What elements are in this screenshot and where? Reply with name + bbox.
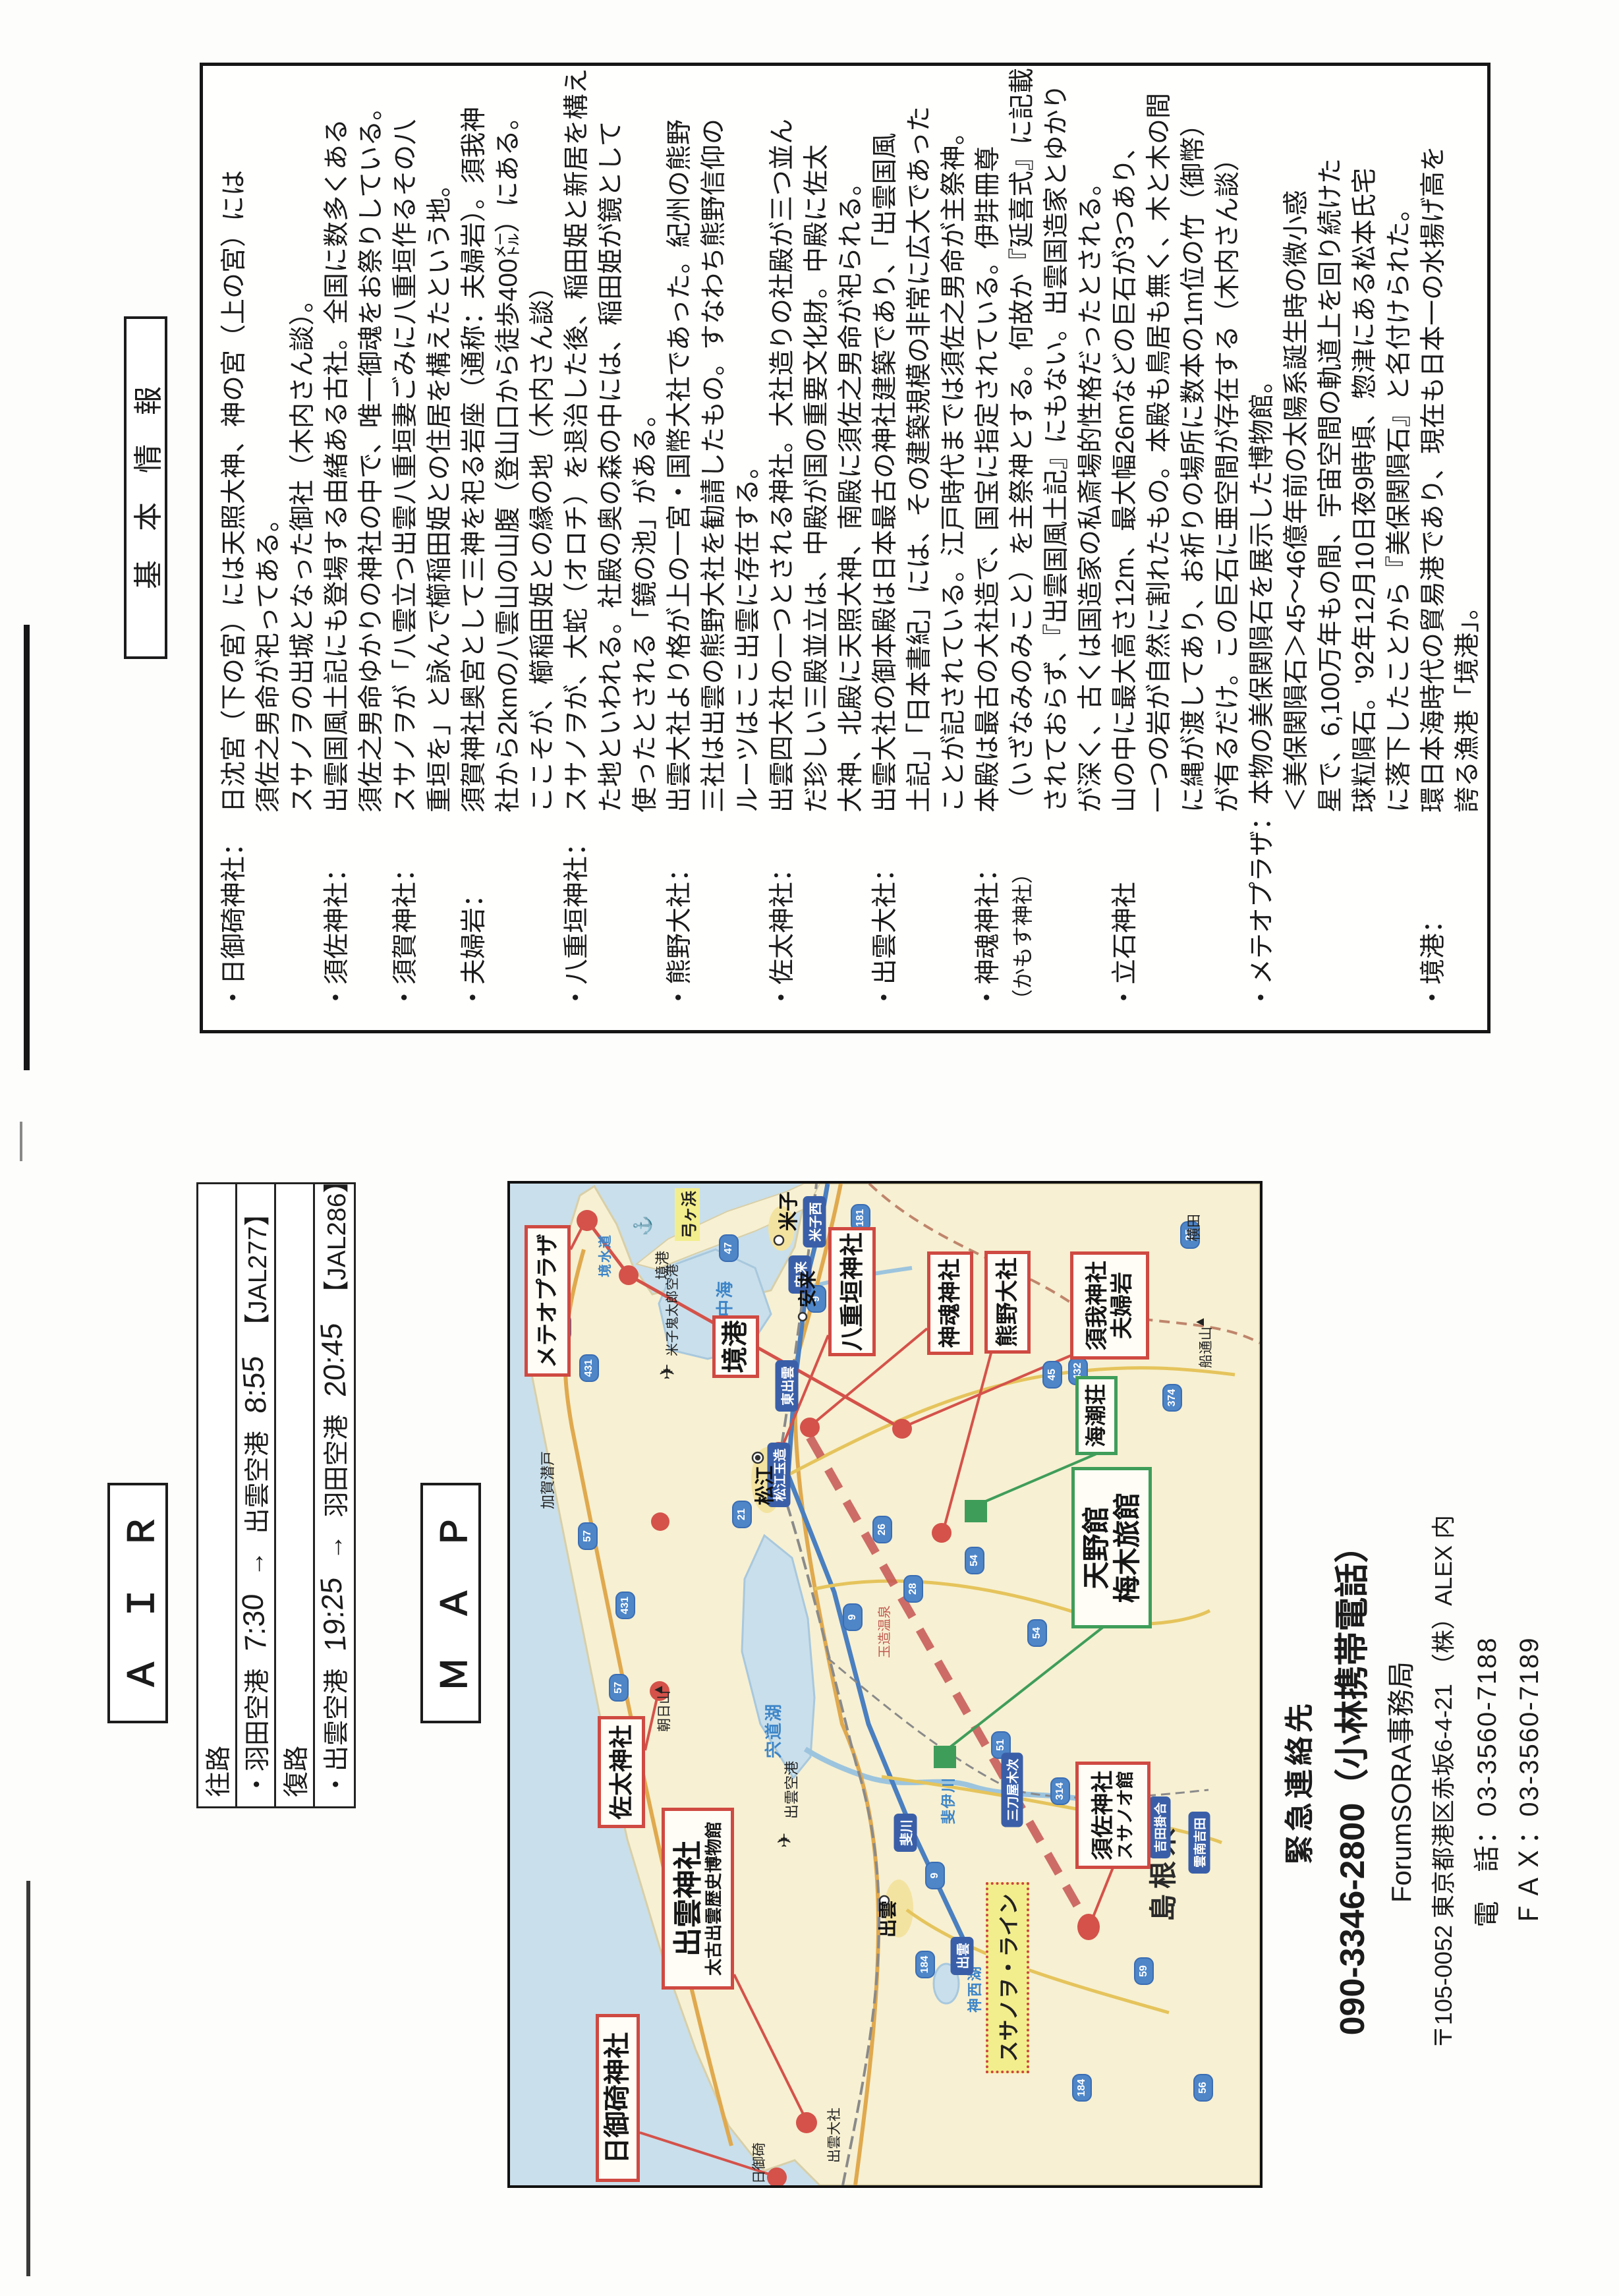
road-number-shield-text: 51 (995, 1739, 1007, 1751)
map-title-text: Ｍ Ａ Ｐ (425, 1514, 477, 1692)
map-city-name: 米子 (772, 1191, 801, 1231)
road-number-shield-text: 431 (619, 1597, 631, 1615)
info-entries: ・日御碕神社：日沈宮（下の宮）には天照大神、神の宮（上の宮）には須佐之男命が祀っ… (217, 84, 1485, 1010)
map-water-name-text: 境水道 (594, 1234, 613, 1277)
map-label-suga-jinja-meotoiwa: 須我神社夫婦岩 (1070, 1251, 1149, 1360)
map-label-suga-jinja-meotoiwa-text: 須我神社 (1085, 1261, 1110, 1350)
road-number-shield-text: 57 (613, 1682, 625, 1694)
map-label-amanokan-umeki-text: 天野館 (1081, 1507, 1112, 1590)
info-line: ・境港：環日本海時代の貿易港であり、現在も日本一の水揚げ高を (1417, 84, 1451, 1010)
road-number-shield-text: 181 (855, 1209, 866, 1227)
info-entry-label (355, 813, 389, 1010)
road-number-shield-text: 45 (1046, 1369, 1058, 1381)
map-interchange: 出雲 (951, 1937, 974, 1975)
map-label-sakaiminato-text: 境港 (721, 1321, 751, 1373)
map-interchange: 米子西 (803, 1196, 826, 1248)
outbound-arrival: 出雲空港 (237, 1431, 274, 1534)
info-entry-label (1177, 813, 1211, 1010)
map-interchange: 三刀屋木次 (1002, 1752, 1023, 1827)
road-number-shield: 54 (965, 1547, 984, 1574)
contact-address: 〒105-0052 東京都港区赤坂6-4-21 （株）ALEX 内 (1425, 1387, 1459, 2177)
road-number-shield: 45 (1042, 1361, 1062, 1389)
outbound-arrow: → (241, 1551, 270, 1576)
info-line: （かもす神社）（いざなみのみこと）を主祭神とする。何故か『延喜式』に記載 (1006, 84, 1040, 1010)
map-label-susa-jinja: 須佐神社スサノオ館 (1075, 1762, 1150, 1869)
info-entry-label (423, 813, 457, 1010)
outbound-label-row: 往路 (198, 1184, 237, 1806)
map-place-name-text: 加賀潜戸 (536, 1451, 557, 1509)
road-number-shield-text: 57 (582, 1530, 594, 1542)
info-entry-label (1314, 813, 1348, 1010)
info-line: 誇る漁港「境港」。 (1451, 84, 1485, 1010)
map-label-yaegaki-jinja-text: 八重垣神社 (839, 1232, 865, 1351)
map-place-name: ⚓ (633, 1215, 653, 1236)
info-entry-label (526, 813, 560, 1010)
map-label-amanokan-umeki: 天野館梅木旅館 (1071, 1467, 1152, 1628)
map-city-name: 出雲 (874, 1901, 900, 1937)
landscape-document: 基 本 情 報 ・日御碕神社：日沈宮（下の宮）には天照大神、神の宮（上の宮）には… (0, 0, 1619, 2296)
info-entry-text: 出雲四大社の一つとされる神社。大社造りの社殿が三つ並ん (766, 84, 800, 813)
map-interchange-text: 東出雲 (778, 1366, 797, 1406)
contact-telephone: 電 話：03-3560-7188 (1465, 1387, 1504, 2177)
info-entry-text: 須佐之男命が祀ってある。 (252, 84, 286, 813)
info-entry-text: 一つの岩が自然に割れたもの。本殿も鳥居も無く、木と木の間 (1143, 84, 1177, 813)
info-entry-label (903, 813, 937, 1010)
info-entry-label (800, 813, 834, 1010)
map-label-sada-jinja: 佐太神社 (598, 1716, 645, 1828)
info-entry-label (1143, 813, 1177, 1010)
air-title-text: Ａ Ｉ Ｒ (112, 1514, 164, 1692)
map-interchange: 東出雲 (776, 1360, 799, 1412)
info-line: に落下したことから『美保関隕石』と名付けられた。 (1382, 84, 1417, 1010)
info-line: 社から2kmの八雲山の山腹（登山口から徒歩400㍍）にある。 (492, 84, 526, 1010)
info-entry-text: （いざなみのみこと）を主祭神とする。何故か『延喜式』に記載 (1006, 68, 1040, 813)
izumo-area-map: 島根県 メテオプラザ境港八重垣神社神魂神社熊野大社須我神社夫婦岩須佐神社スサノオ… (507, 1181, 1263, 2188)
info-line: ・神魂神社：本殿は最古の大社造で、国宝に指定されている。伊弉冊尊 (971, 84, 1006, 1010)
road-number-shield-text: 374 (1166, 1389, 1178, 1407)
info-line: ここそが、櫛稲田姫との縁の地（木内さん談） (526, 84, 560, 1010)
road-number-shield-text: 9 (847, 1615, 859, 1621)
info-entry-label (629, 813, 663, 1010)
map-city-name-text: 安来 (793, 1271, 820, 1307)
info-line: が有るだけ。この巨石に亜空間が存在する（木内さん談） (1211, 84, 1245, 1010)
map-label-izumo-jinja-text: 太古出雲歴史博物館 (704, 1822, 724, 1976)
map-label-izumo-jinja-text: 出雲神社 (672, 1841, 704, 1957)
map-place-name: 玉造温泉 (874, 1605, 893, 1658)
road-number-shield-text: 431 (583, 1360, 595, 1377)
road-number-shield-text: 56 (1197, 2082, 1209, 2094)
info-line: 須佐之男命ゆかりの神社の中で、唯一御魂をお祭りしている。 (355, 84, 389, 1010)
info-line: ・夫婦岩：須賀神社奥宮として三神を祀る岩座（通称：夫婦岩）。須我神 (457, 84, 492, 1010)
basic-info-box: ・日御碕神社：日沈宮（下の宮）には天照大神、神の宮（上の宮）には須佐之男命が祀っ… (200, 63, 1491, 1033)
outbound-label: 往路 (198, 1746, 235, 1797)
info-line: ・八重垣神社：スサノヲが、大蛇（オロチ）を退治した後、稲田姫と新居を構え (560, 84, 594, 1010)
map-interchange-text: 吉田掛合 (1151, 1802, 1169, 1852)
map-place-name: 日御碕 (749, 2142, 768, 2184)
map-place-name: 船通山 (1195, 1327, 1215, 1368)
info-entry-label (1074, 813, 1108, 1010)
road-number-shield: 26 (872, 1516, 892, 1543)
map-place-name-text: 玉造温泉 (874, 1605, 893, 1658)
road-number-shield-text: 184 (1076, 2079, 1088, 2097)
info-entry-text: ことが記されている。江戸時代までは須佐之男命が主祭神。 (937, 84, 971, 813)
scan-artifact (24, 625, 30, 1070)
info-entry-text: スサノヲが「八雲立つ出雲八重垣妻ごみに八重垣作るその八 (389, 84, 423, 813)
info-entry-label: ・夫婦岩： (457, 813, 492, 1010)
contact-heading: 緊急連絡先 (1276, 1387, 1318, 2177)
info-line: ことが記されている。江戸時代までは須佐之男命が主祭神。 (937, 84, 971, 1010)
info-entry-text: 土記」「日本書紀」には、その建築規模の非常に広大であった (903, 84, 937, 813)
road-number-shield-text: 54 (1031, 1627, 1043, 1639)
info-entry-text: スサノヲの出城となった御社（木内さん談）。 (286, 84, 320, 813)
basic-info-title-text: 基 本 情 報 (125, 386, 167, 589)
road-number-shield: 9 (925, 1862, 945, 1889)
info-entry-label: ・佐太神社： (766, 813, 800, 1010)
map-label-kumano-taisha: 熊野大社 (984, 1251, 1031, 1354)
map-place-name-text: 出雲大社 (824, 2108, 843, 2163)
info-entry-label (1451, 813, 1485, 1010)
map-label-amanokan-umeki-text: 梅木旅館 (1112, 1493, 1143, 1603)
outbound-arrival-time: 8:55 (235, 1356, 273, 1414)
outbound-departure: ・羽田空港 (237, 1669, 274, 1797)
outbound-departure-time: 7:30 (235, 1593, 273, 1652)
map-place-name-text: 米子鬼太郎空港 (662, 1264, 681, 1356)
map-interchange-text: 雲南吉田 (1191, 1818, 1208, 1868)
map-interchange-text: 斐川 (896, 1820, 915, 1846)
info-line: 土記」「日本書紀」には、その建築規模の非常に広大であった (903, 84, 937, 1010)
info-entry-text: ルーツはここ出雲に存在する。 (731, 84, 766, 813)
info-entry-text: 本物の美保関隕石を展示した博物館。 (1245, 84, 1280, 805)
road-number-shield: 9 (843, 1603, 863, 1631)
road-number-shield: 431 (615, 1592, 635, 1619)
map-interchange-text: 三刀屋木次 (1004, 1758, 1021, 1821)
road-number-shield-text: 184 (919, 1956, 931, 1974)
info-entry-label (1040, 813, 1074, 1010)
return-arrival-time: 20:45 (313, 1323, 353, 1398)
return-flight-number: 【JAL286】 (316, 1167, 353, 1306)
info-entry-text: 誇る漁港「境港」。 (1451, 84, 1485, 813)
map-label-hinomisaki-jinja: 日御碕神社 (596, 2014, 640, 2182)
road-number-shield-text: 26 (876, 1524, 888, 1535)
info-line: 一つの岩が自然に割れたもの。本殿も鳥居も無く、木と木の間 (1143, 84, 1177, 1010)
info-entry-label: ・立石神社 (1108, 813, 1143, 1010)
road-number-shield: 57 (609, 1674, 629, 1702)
map-label-meteo-plaza: メテオプラザ (525, 1225, 571, 1377)
return-departure: ・出雲空港 (316, 1669, 353, 1797)
info-line: ・須賀神社：スサノヲが「八雲立つ出雲八重垣妻ごみに八重垣作るその八 (389, 84, 423, 1010)
info-entry-label (286, 813, 320, 1010)
info-entry-label (1382, 813, 1417, 1010)
map-place-name: 出雲空港 (780, 1761, 801, 1819)
map-place-name-text: ⚓ (633, 1215, 653, 1236)
return-arrival: 羽田空港 (316, 1414, 353, 1517)
info-entry-text: が深く、古くは国造家の私斎場的性格だったとされる。 (1074, 84, 1108, 813)
info-entry-label (731, 813, 766, 1010)
info-line: ・熊野大社：出雲大社より格が上の一宮・国幣大社であった。紀州の熊野 (663, 84, 697, 1010)
road-number-shield: 59 (1134, 1957, 1154, 1985)
info-line: ・日御碕神社：日沈宮（下の宮）には天照大神、神の宮（上の宮）には (217, 84, 252, 1010)
map-label-susa-jinja-text: スサノオ館 (1116, 1771, 1135, 1859)
info-line: に縄が渡してあり、お祈りの場所に数本の1m位の竹（御幣） (1177, 84, 1211, 1010)
road-number-shield-text: 47 (723, 1242, 735, 1254)
outbound-flight-number: 【JAL277】 (237, 1201, 274, 1339)
map-tag-susanowo-line-text: スサノヲ・ライン (992, 1893, 1023, 2061)
info-line: ・須佐神社：出雲国風土記にも登場する由緒ある古社。全国に数多くある (320, 84, 355, 1010)
info-entry-label (1211, 813, 1245, 1010)
scan-artifact (26, 1881, 30, 2276)
info-entry-label: ・メテオプラザ： (1245, 805, 1280, 1010)
road-number-shield-text: 54 (969, 1555, 980, 1566)
road-number-shield-text: 21 (736, 1508, 748, 1520)
info-entry-text: だ珍しい三殿並立は、中殿が国の重要文化財。中殿に佐太 (800, 84, 834, 813)
map-tag-yumigahama-text: 弓ヶ浜 (676, 1191, 699, 1238)
info-entry-label (492, 813, 526, 1010)
map-place-name-text: ✈ (774, 1833, 795, 1848)
road-number-shield: 374 (1162, 1384, 1182, 1412)
info-entry-label (252, 813, 286, 1010)
info-line: 須佐之男命が祀ってある。 (252, 84, 286, 1010)
map-place-name-text: 船通山 (1195, 1327, 1215, 1368)
info-entry-text: 使ったとされる「鏡の池」がある。 (629, 84, 663, 813)
info-entry-label: ・出雲大社： (868, 813, 903, 1010)
map-label-hinomisaki-jinja-text: 日御碕神社 (603, 2032, 633, 2164)
map-place-name-text: 横田 (1183, 1214, 1203, 1242)
info-entry-label: ・須佐神社： (320, 813, 355, 1010)
road-number-shield: 56 (1193, 2074, 1213, 2102)
map-place-name: 朝日山 (654, 1690, 673, 1732)
map-label-kamosu-jinja-text: 神魂神社 (938, 1259, 963, 1348)
contact-fax: ＦＡＸ：03-3560-7189 (1508, 1387, 1546, 2177)
map-label-kaichoso-text: 海潮荘 (1085, 1384, 1108, 1447)
info-entry-text: に縄が渡してあり、お祈りの場所に数本の1m位の竹（御幣） (1177, 84, 1211, 813)
info-entry-label: ・八重垣神社： (560, 813, 594, 1010)
info-entry-text: 須賀神社奥宮として三神を祀る岩座（通称：夫婦岩）。須我神 (457, 84, 492, 813)
info-line: た地といわれる。社殿の奥の森の中には、稲田姫が鏡として (594, 84, 629, 1010)
map-place-name: 横田 (1183, 1214, 1203, 1242)
info-line: が深く、古くは国造家の私斎場的性格だったとされる。 (1074, 84, 1108, 1010)
road-number-shield: 28 (903, 1575, 923, 1603)
map-water-name-text: 宍道湖 (760, 1703, 785, 1758)
info-entry-text: 社から2kmの八雲山の山腹（登山口から徒歩400㍍）にある。 (492, 84, 526, 813)
map-label-suga-jinja-meotoiwa-text: 夫婦岩 (1110, 1272, 1135, 1339)
info-line: 球粒隕石。'92年12月10日夜9時頃、惣津にある松本氏宅 (1348, 84, 1382, 1010)
info-line: 三社は出雲の熊野大社を勧請したもの。すなわち熊野信仰の (697, 84, 731, 1010)
map-water-name: 宍道湖 (760, 1703, 785, 1758)
map-place-name-text: 朝日山 (654, 1690, 673, 1732)
map-label-izumo-jinja: 出雲神社太古出雲歴史博物館 (662, 1808, 734, 1990)
info-line: 使ったとされる「鏡の池」がある。 (629, 84, 663, 1010)
info-entry-text: 出雲大社の御本殿は日本最古の神社建築であり、「出雲国風 (868, 84, 903, 813)
info-entry-text: た地といわれる。社殿の奥の森の中には、稲田姫が鏡として (594, 84, 629, 813)
info-entry-text: スサノヲが、大蛇（オロチ）を退治した後、稲田姫と新居を構え (560, 69, 594, 813)
info-entry-label (1280, 813, 1314, 1010)
info-entry-text: 出雲国風土記にも登場する由緒ある古社。全国に数多くある (320, 84, 355, 813)
map-interchange: 雲南吉田 (1189, 1812, 1210, 1874)
map-place-name-text: ✈ (656, 1363, 679, 1380)
map-label-kamosu-jinja: 神魂神社 (927, 1251, 973, 1355)
scan-artifact (20, 1122, 22, 1161)
outbound-flight-row: ・羽田空港 7:30 → 出雲空港 8:55 【JAL277】 (237, 1184, 276, 1806)
info-line: されておらず、『出雲国風土記』にもない。出雲国造家とゆかり (1040, 84, 1074, 1010)
info-entry-label (1348, 813, 1382, 1010)
air-section-title: Ａ Ｉ Ｒ (107, 1483, 168, 1723)
map-label-meteo-plaza-text: メテオプラザ (535, 1234, 560, 1368)
map-label-kaichoso: 海潮荘 (1075, 1376, 1118, 1455)
map-place-name: ✈ (774, 1833, 795, 1848)
map-city-name-text: 松江 (749, 1466, 778, 1505)
road-number-shield: 431 (579, 1354, 599, 1382)
map-interchange: 吉田掛合 (1149, 1796, 1171, 1858)
info-entry-text: に落下したことから『美保関隕石』と名付けられた。 (1382, 84, 1417, 813)
map-water-name-text: 中海 (712, 1280, 736, 1317)
map-section-title: Ｍ Ａ Ｐ (420, 1483, 481, 1723)
map-place-name-text: ▲ (1193, 1315, 1208, 1329)
map-place-name: 出雲大社 (824, 2108, 843, 2163)
info-entry-label: ・神魂神社： (971, 813, 1006, 1010)
scanned-page: 基 本 情 報 ・日御碕神社：日沈宮（下の宮）には天照大神、神の宮（上の宮）には… (0, 0, 1619, 2296)
map-label-kumano-taisha-text: 熊野大社 (995, 1257, 1020, 1347)
info-entry-label (697, 813, 731, 1010)
map-water-name: 斐伊川 (937, 1777, 958, 1824)
info-line: ルーツはここ出雲に存在する。 (731, 84, 766, 1010)
info-entry-text: 山の中に最大高さ12m、最大幅26mなどの巨石が3つあり、 (1108, 84, 1143, 813)
info-entry-label: ・須賀神社： (389, 813, 423, 1010)
road-number-shield-text: 59 (1138, 1965, 1150, 1977)
map-place-name: 米子鬼太郎空港 (662, 1264, 681, 1356)
map-water-name-text: 斐伊川 (937, 1777, 958, 1824)
return-label: 復路 (276, 1746, 313, 1797)
info-entry-text: 球粒隕石。'92年12月10日夜9時頃、惣津にある松本氏宅 (1348, 84, 1382, 813)
road-number-shield: 184 (915, 1951, 935, 1978)
map-tag-yumigahama: 弓ヶ浜 (675, 1188, 700, 1241)
info-entry-label (834, 813, 868, 1010)
info-entry-text: ＜美保関隕石＞45～46億年前の太陽系誕生時の微小惑 (1280, 84, 1314, 813)
map-water-name: 境水道 (594, 1234, 613, 1277)
map-place-name: ▲ (1193, 1315, 1208, 1329)
info-entry-text: 環日本海時代の貿易港であり、現在も日本一の水揚げ高を (1417, 84, 1451, 813)
map-label-susa-jinja-text: 須佐神社 (1091, 1771, 1116, 1860)
info-entry-text: 重垣を」と詠んで櫛稲田姫との住居を構えたという地。 (423, 84, 457, 813)
info-entry-text: 星で、6,100万年もの間、宇宙空間の軌道上を回り続けた (1314, 84, 1348, 813)
info-line: 大神、北殿に天照大神、南殿に須佐之男命が祀られる。 (834, 84, 868, 1010)
info-line: ・立石神社山の中に最大高さ12m、最大幅26mなどの巨石が3つあり、 (1108, 84, 1143, 1010)
map-label-sakaiminato: 境港 (712, 1315, 759, 1378)
road-number-shield: 184 (1072, 2074, 1092, 2102)
map-label-layer: 島根県 メテオプラザ境港八重垣神社神魂神社熊野大社須我神社夫婦岩須佐神社スサノオ… (510, 1184, 1260, 2185)
flight-table: 往路 ・羽田空港 7:30 → 出雲空港 8:55 【JAL277】 復路 ・出… (196, 1182, 356, 1808)
info-entry-text: されておらず、『出雲国風土記』にもない。出雲国造家とゆかり (1040, 84, 1074, 813)
road-number-shield: 314 (1050, 1777, 1070, 1805)
road-number-shield-text: 28 (907, 1583, 919, 1595)
map-city-name: 松江 (749, 1466, 778, 1505)
info-line: 重垣を」と詠んで櫛稲田姫との住居を構えたという地。 (423, 84, 457, 1010)
road-number-shield: 57 (578, 1522, 598, 1550)
info-entry-text: ここそが、櫛稲田姫との縁の地（木内さん談） (526, 84, 560, 813)
info-entry-text: 出雲大社より格が上の一宮・国幣大社であった。紀州の熊野 (663, 84, 697, 813)
map-city-name-text: 出雲 (874, 1901, 900, 1937)
map-interchange-text: 出雲 (953, 1943, 972, 1969)
map-label-sada-jinja-text: 佐太神社 (608, 1725, 635, 1820)
map-place-name-text: 出雲空港 (780, 1761, 801, 1819)
info-line: ＜美保関隕石＞45～46億年前の太陽系誕生時の微小惑 (1280, 84, 1314, 1010)
map-city-name: 安来 (793, 1271, 820, 1307)
map-place-name-text: 日御碕 (749, 2142, 768, 2184)
map-interchange: 斐川 (894, 1814, 917, 1852)
info-entry-text: 大神、北殿に天照大神、南殿に須佐之男命が祀られる。 (834, 84, 868, 813)
return-arrow: → (320, 1534, 349, 1560)
road-number-shield: 47 (719, 1234, 739, 1262)
info-entry-label (937, 813, 971, 1010)
info-line: 星で、6,100万年もの間、宇宙空間の軌道上を回り続けた (1314, 84, 1348, 1010)
map-water-name: 中海 (712, 1280, 736, 1317)
map-place-name: ✈ (656, 1363, 679, 1380)
info-entry-text: 日沈宮（下の宮）には天照大神、神の宮（上の宮）には (217, 84, 252, 813)
emergency-contact-block: 緊急連絡先 090-3346-2800（小林携帯電話） ForumSORA事務局… (1276, 1387, 1550, 2177)
info-entry-label: （かもす神社） (1006, 813, 1040, 1010)
map-place-name: 加賀潜戸 (536, 1451, 557, 1509)
info-entry-label: ・熊野大社： (663, 813, 697, 1010)
map-place-name-text: ▲ (651, 1683, 666, 1696)
road-number-shield-text: 9 (929, 1873, 941, 1879)
return-label-row: 復路 (276, 1184, 315, 1806)
map-tag-susanowo-line: スサノヲ・ライン (986, 1882, 1029, 2073)
contact-mobile-phone: 090-3346-2800（小林携帯電話） (1324, 1387, 1374, 2177)
info-line: だ珍しい三殿並立は、中殿が国の重要文化財。中殿に佐太 (800, 84, 834, 1010)
basic-info-title: 基 本 情 報 (124, 316, 167, 659)
contact-organization: ForumSORA事務局 (1379, 1387, 1419, 2177)
info-entry-text: 三社は出雲の熊野大社を勧請したもの。すなわち熊野信仰の (697, 84, 731, 813)
map-city-name-text: 米子 (772, 1191, 801, 1231)
info-line: ・メテオプラザ：本物の美保関隕石を展示した博物館。 (1245, 84, 1280, 1010)
info-entry-label: ・日御碕神社： (217, 813, 252, 1010)
map-interchange-text: 米子西 (805, 1202, 824, 1242)
info-entry-text: が有るだけ。この巨石に亜空間が存在する（木内さん談） (1211, 84, 1245, 813)
info-line: ・出雲大社：出雲大社の御本殿は日本最古の神社建築であり、「出雲国風 (868, 84, 903, 1010)
info-entry-text: 須佐之男命ゆかりの神社の中で、唯一御魂をお祭りしている。 (355, 84, 389, 813)
info-entry-label: ・境港： (1417, 813, 1451, 1010)
return-flight-row: ・出雲空港 19:25 → 羽田空港 20:45 【JAL286】 (315, 1184, 354, 1806)
info-entry-label (594, 813, 629, 1010)
map-label-yaegaki-jinja: 八重垣神社 (828, 1227, 876, 1356)
road-number-shield-text: 314 (1054, 1783, 1066, 1800)
return-departure-time: 19:25 (313, 1577, 353, 1652)
info-line: ・佐太神社：出雲四大社の一つとされる神社。大社造りの社殿が三つ並ん (766, 84, 800, 1010)
info-entry-text: 本殿は最古の大社造で、国宝に指定されている。伊弉冊尊 (971, 84, 1006, 813)
info-line: スサノヲの出城となった御社（木内さん談）。 (286, 84, 320, 1010)
road-number-shield: 54 (1027, 1619, 1047, 1647)
map-place-name: ▲ (651, 1683, 666, 1696)
